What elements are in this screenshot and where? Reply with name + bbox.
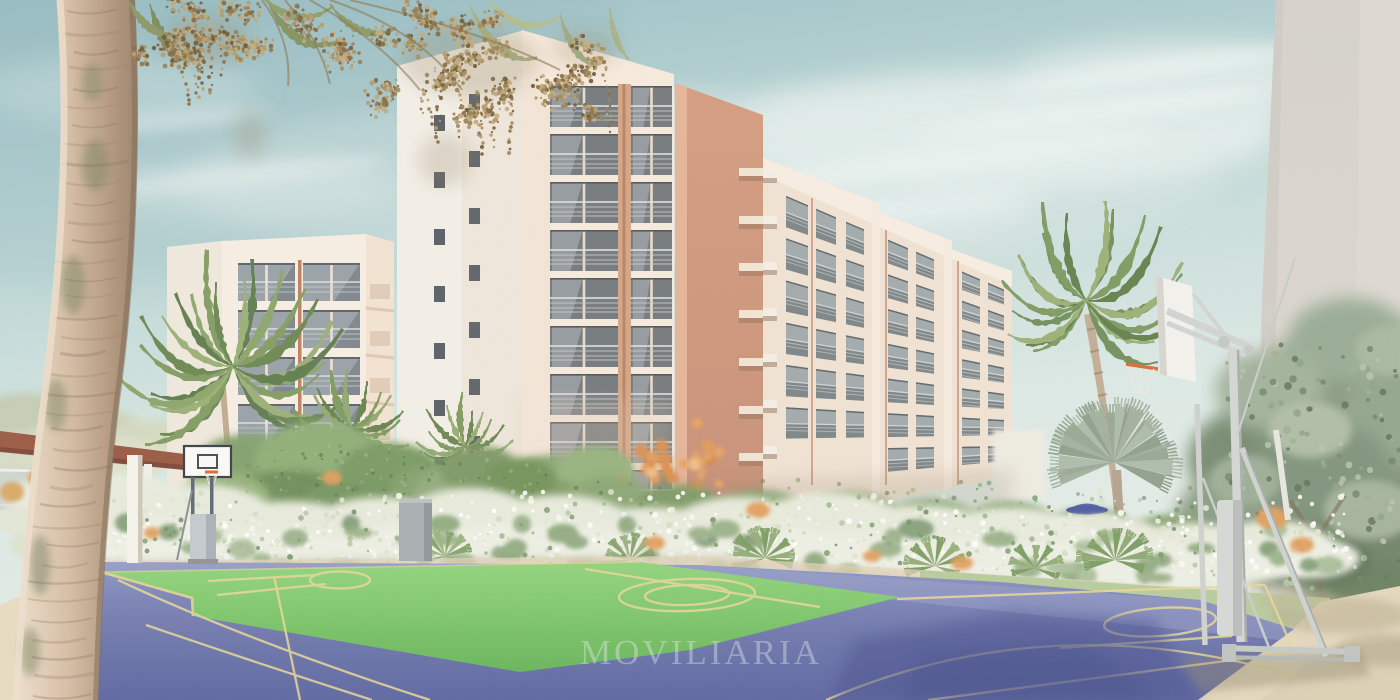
svg-text:MOVILIARIA: MOVILIARIA — [580, 633, 822, 672]
